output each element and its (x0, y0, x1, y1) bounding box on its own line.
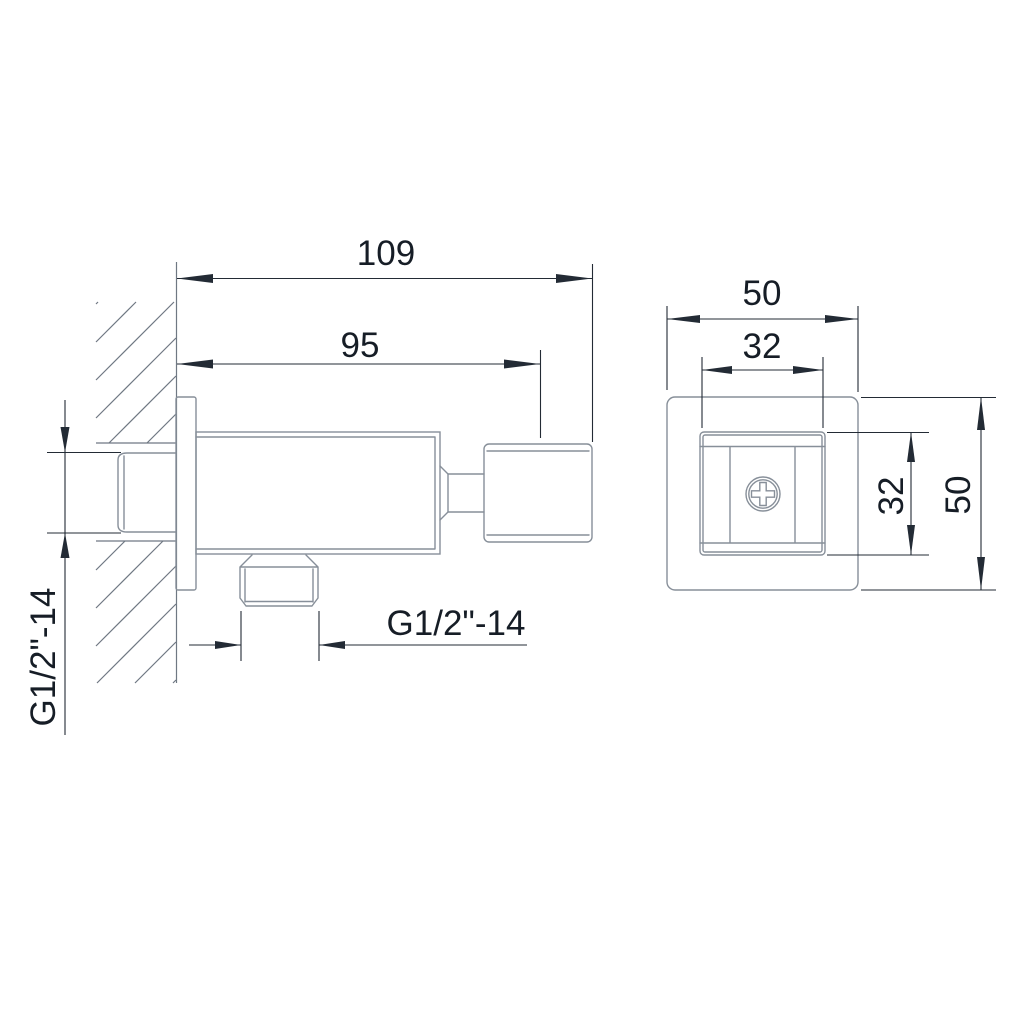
dim-32-top-label: 32 (743, 327, 782, 366)
drawing-svg: 109 95 G1/2"-14 G1/2"-14 (0, 0, 1024, 1024)
arrowhead (702, 366, 732, 374)
wall-flange (176, 397, 196, 590)
dimension-text-side: 109 95 G1/2"-14 G1/2"-14 (24, 234, 525, 726)
dimension-arrows-front (667, 315, 985, 590)
hatch-line (96, 302, 174, 380)
arrowhead (907, 525, 915, 555)
inlet-thread-label: G1/2"-14 (24, 588, 63, 727)
stem (448, 474, 484, 512)
dim-50-top-label: 50 (743, 274, 782, 313)
hatch-line (96, 338, 176, 418)
hatch-line (135, 642, 176, 683)
outlet-thread-label: G1/2"-14 (387, 604, 526, 643)
side-view-object (118, 397, 592, 606)
front-inner-square-chamfer (703, 435, 822, 552)
dimension-lines-front (667, 306, 996, 590)
handle-contours (487, 451, 589, 535)
technical-drawing-canvas: 109 95 G1/2"-14 G1/2"-14 (0, 0, 1024, 1024)
arrowhead (319, 641, 345, 649)
arrowhead (977, 397, 985, 430)
handle-block (484, 444, 592, 542)
screw-inner-circle (749, 480, 777, 508)
hatch-line (96, 566, 176, 646)
hatch-line (109, 376, 176, 443)
arrowhead (177, 360, 213, 369)
bottom-outlet (240, 555, 318, 606)
hatch-line (96, 302, 98, 304)
arrowhead (556, 274, 592, 283)
wall-hatch (96, 262, 177, 683)
hatch-line (97, 604, 176, 683)
hatch-line (147, 414, 176, 443)
bottom-outlet-contours (245, 569, 313, 602)
arrowhead (667, 315, 700, 323)
dim-50-right-label: 50 (939, 476, 978, 515)
arrowhead (61, 427, 70, 453)
dim-109-label: 109 (357, 234, 415, 273)
dimension-lines-side (47, 264, 593, 735)
stem-flare (440, 466, 448, 520)
dim-95-label: 95 (341, 326, 380, 365)
phillips-screw-cross-icon (752, 483, 775, 506)
dim-32-right-label: 32 (872, 477, 911, 516)
front-face-bands (700, 447, 825, 544)
dimension-arrows-side (61, 274, 593, 649)
arrowhead (977, 557, 985, 590)
arrowhead (793, 366, 823, 374)
valve-body (196, 432, 440, 554)
dim-109-line (177, 264, 593, 442)
dimension-text-front: 50 32 32 50 (743, 274, 978, 515)
arrowhead (61, 533, 70, 558)
front-inner-square (700, 432, 825, 555)
arrowhead (177, 274, 213, 283)
arrowhead (825, 315, 858, 323)
valve-body-contours (196, 437, 435, 549)
hatch-line (96, 541, 125, 570)
hatch-line (173, 680, 176, 683)
wall-opening-edges (96, 443, 176, 541)
hatch-line (96, 541, 163, 608)
arrowhead (215, 641, 241, 649)
dimensions-side-view: 109 95 G1/2"-14 G1/2"-14 (24, 234, 593, 735)
arrowhead (504, 360, 540, 369)
front-view-object (667, 397, 858, 590)
hatch-line (96, 302, 136, 342)
inlet-pipe (118, 453, 176, 532)
arrowhead (907, 432, 915, 462)
front-outer-square (667, 397, 858, 590)
